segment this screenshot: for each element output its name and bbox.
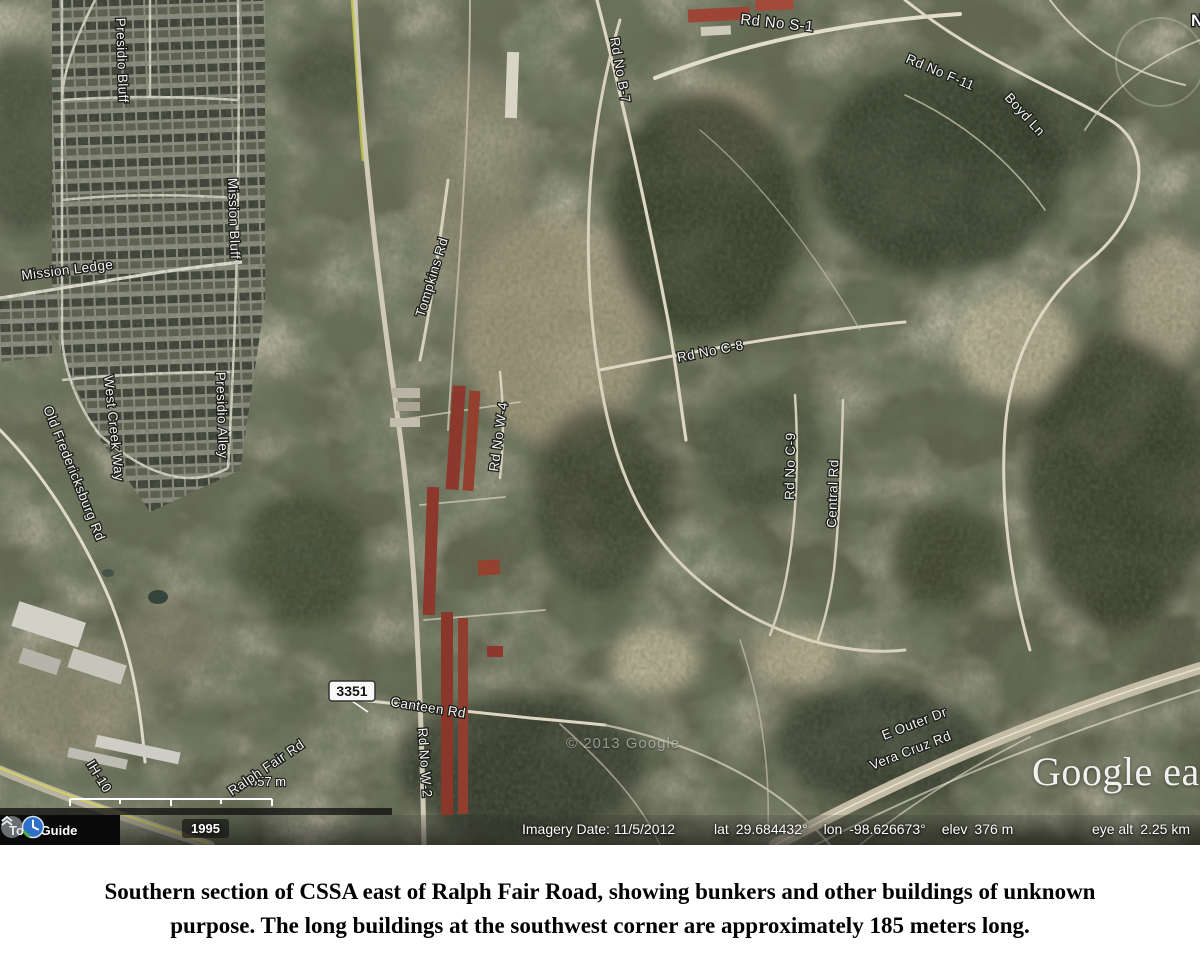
road-label: Central Rd [824, 459, 841, 528]
figure-caption: Southern section of CSSA east of Ralph F… [0, 845, 1200, 973]
eye-alt-label: eye alt [1092, 821, 1133, 837]
compass-north-indicator[interactable]: N [1191, 11, 1200, 30]
lat-value: 29.684432° [736, 821, 808, 837]
coordinates-readout: lat29.684432°lon-98.626673°elev376 m [714, 821, 1029, 837]
google-earth-window: 3351 557 m N Presidio Bluff Mission Bluf… [0, 0, 1200, 973]
shield-number: 3351 [336, 683, 367, 699]
lat-label: lat [714, 821, 729, 837]
google-earth-logo: Google ear [1032, 748, 1200, 795]
imagery-date: Imagery Date: 11/5/2012 [522, 821, 675, 837]
road-label: Rd No C-9 [782, 432, 798, 500]
lon-label: lon [824, 821, 843, 837]
road-label: Mission Bluff [225, 178, 243, 260]
copyright-watermark: © 2013 Google [566, 735, 680, 752]
eye-alt-value: 2.25 km [1140, 821, 1190, 837]
map-viewport[interactable]: 3351 557 m N Presidio Bluff Mission Bluf… [0, 0, 1200, 845]
caption-line-1: Southern section of CSSA east of Ralph F… [105, 875, 1096, 910]
eye-altitude-readout: eye alt2.25 km [1092, 821, 1190, 837]
status-bar: Tour Guide 1995 Imagery Date: 11/5/2012 … [0, 815, 1200, 845]
lon-value: -98.626673° [849, 821, 925, 837]
road-label: Presidio Bluff [113, 18, 131, 103]
road-label: Presidio Alley [213, 372, 231, 459]
caption-line-2: purpose. The long buildings at the south… [170, 909, 1030, 944]
aerial-imagery: 3351 557 m N Presidio Bluff Mission Bluf… [0, 0, 1200, 845]
time-slider-year[interactable]: 1995 [182, 819, 229, 838]
historical-imagery-icon[interactable] [0, 815, 52, 839]
elev-label: elev [942, 821, 968, 837]
time-slider-edge [0, 808, 392, 815]
elev-value: 376 m [974, 821, 1013, 837]
